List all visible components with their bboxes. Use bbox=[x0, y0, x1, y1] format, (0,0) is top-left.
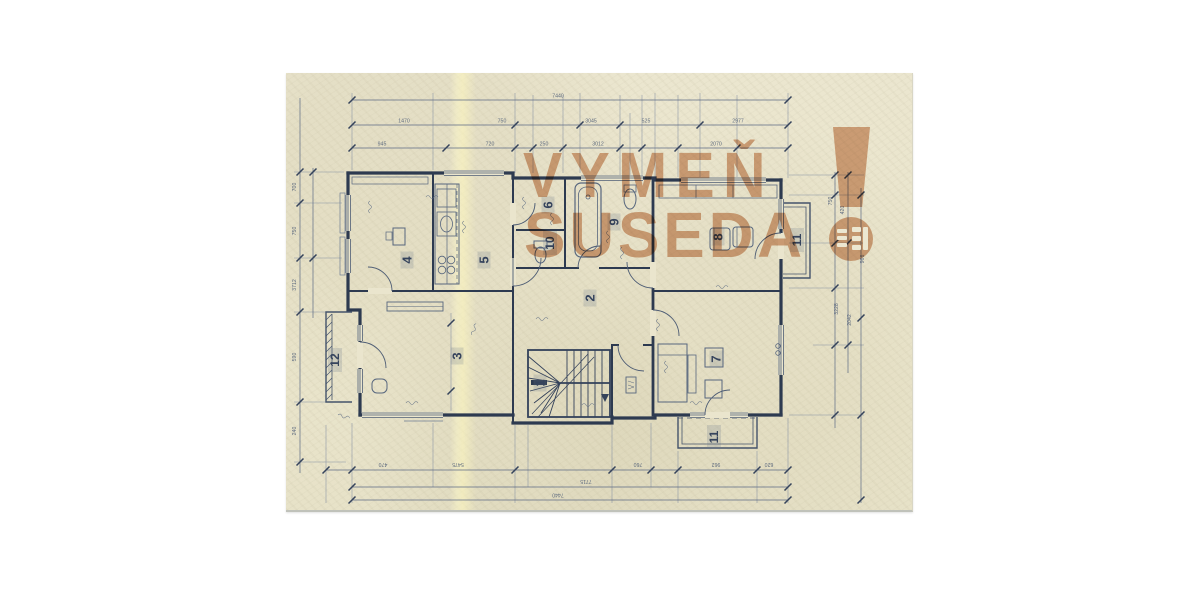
room-label-2: 2 bbox=[583, 294, 598, 301]
dim-right: 3228 bbox=[834, 303, 840, 315]
dim-bottom: 620 bbox=[765, 461, 774, 467]
screenshot-canvas: 7440 1470 750 3045 525 2977 945 720 250 … bbox=[0, 0, 1200, 590]
dim-top: 250 bbox=[540, 142, 549, 148]
dim-bottom-total: 7440 bbox=[552, 492, 564, 498]
dim-top: 1470 bbox=[398, 119, 410, 125]
room-label-11-top: 11 bbox=[790, 233, 804, 246]
dim-right: 966 bbox=[860, 255, 866, 264]
dim-top: 945 bbox=[378, 142, 387, 148]
room-label-11-bottom: 11 bbox=[707, 430, 721, 443]
dim-top: 2977 bbox=[732, 119, 744, 125]
room-label-8: 8 bbox=[711, 233, 726, 240]
room-label-6: 6 bbox=[541, 201, 556, 208]
room-label-7: 7 bbox=[709, 355, 724, 362]
room-label-5: 5 bbox=[477, 256, 492, 263]
room-label-4: 4 bbox=[400, 256, 415, 264]
dim-top: 3045 bbox=[585, 119, 597, 125]
room-label-3: 3 bbox=[450, 352, 465, 359]
dim-bottom: 470 bbox=[379, 461, 388, 467]
dim-right: 750 bbox=[828, 197, 834, 206]
dim-top-total: 7440 bbox=[552, 94, 564, 100]
dimension-extension-lines bbox=[294, 93, 864, 503]
dim-left: 700 bbox=[292, 183, 298, 192]
kitchen-fixtures bbox=[435, 184, 459, 284]
dim-top: 525 bbox=[642, 119, 651, 125]
room-label-9: 9 bbox=[607, 218, 622, 225]
dim-bottom: 7715 bbox=[580, 478, 592, 484]
dim-left: 750 bbox=[292, 227, 298, 236]
scanned-floorplan-paper: 7440 1470 750 3045 525 2977 945 720 250 … bbox=[286, 73, 913, 512]
dim-left: 590 bbox=[292, 353, 298, 362]
room-label-1: 1 bbox=[533, 379, 548, 386]
floorplan-drawing: 7440 1470 750 3045 525 2977 945 720 250 … bbox=[286, 73, 912, 510]
dimension-lines bbox=[300, 98, 861, 503]
dim-bottom: 962 bbox=[712, 461, 721, 467]
dim-left: 240 bbox=[292, 427, 298, 436]
dim-right: 2042 bbox=[847, 314, 853, 326]
dim-top: 3012 bbox=[592, 142, 604, 148]
dim-top: 750 bbox=[498, 119, 507, 125]
dim-left: 3712 bbox=[292, 279, 298, 291]
dim-top: 2070 bbox=[710, 142, 722, 148]
dim-bottom: 5475 bbox=[452, 461, 464, 467]
room-label-12: 12 bbox=[328, 353, 342, 367]
inner-walls bbox=[348, 173, 781, 423]
dim-bottom: 760 bbox=[634, 461, 643, 467]
dimension-ticks bbox=[297, 97, 865, 504]
dim-right: 420 bbox=[840, 206, 846, 215]
furniture bbox=[352, 177, 780, 402]
room-label-10: 10 bbox=[543, 236, 557, 250]
dim-top: 720 bbox=[486, 142, 495, 148]
